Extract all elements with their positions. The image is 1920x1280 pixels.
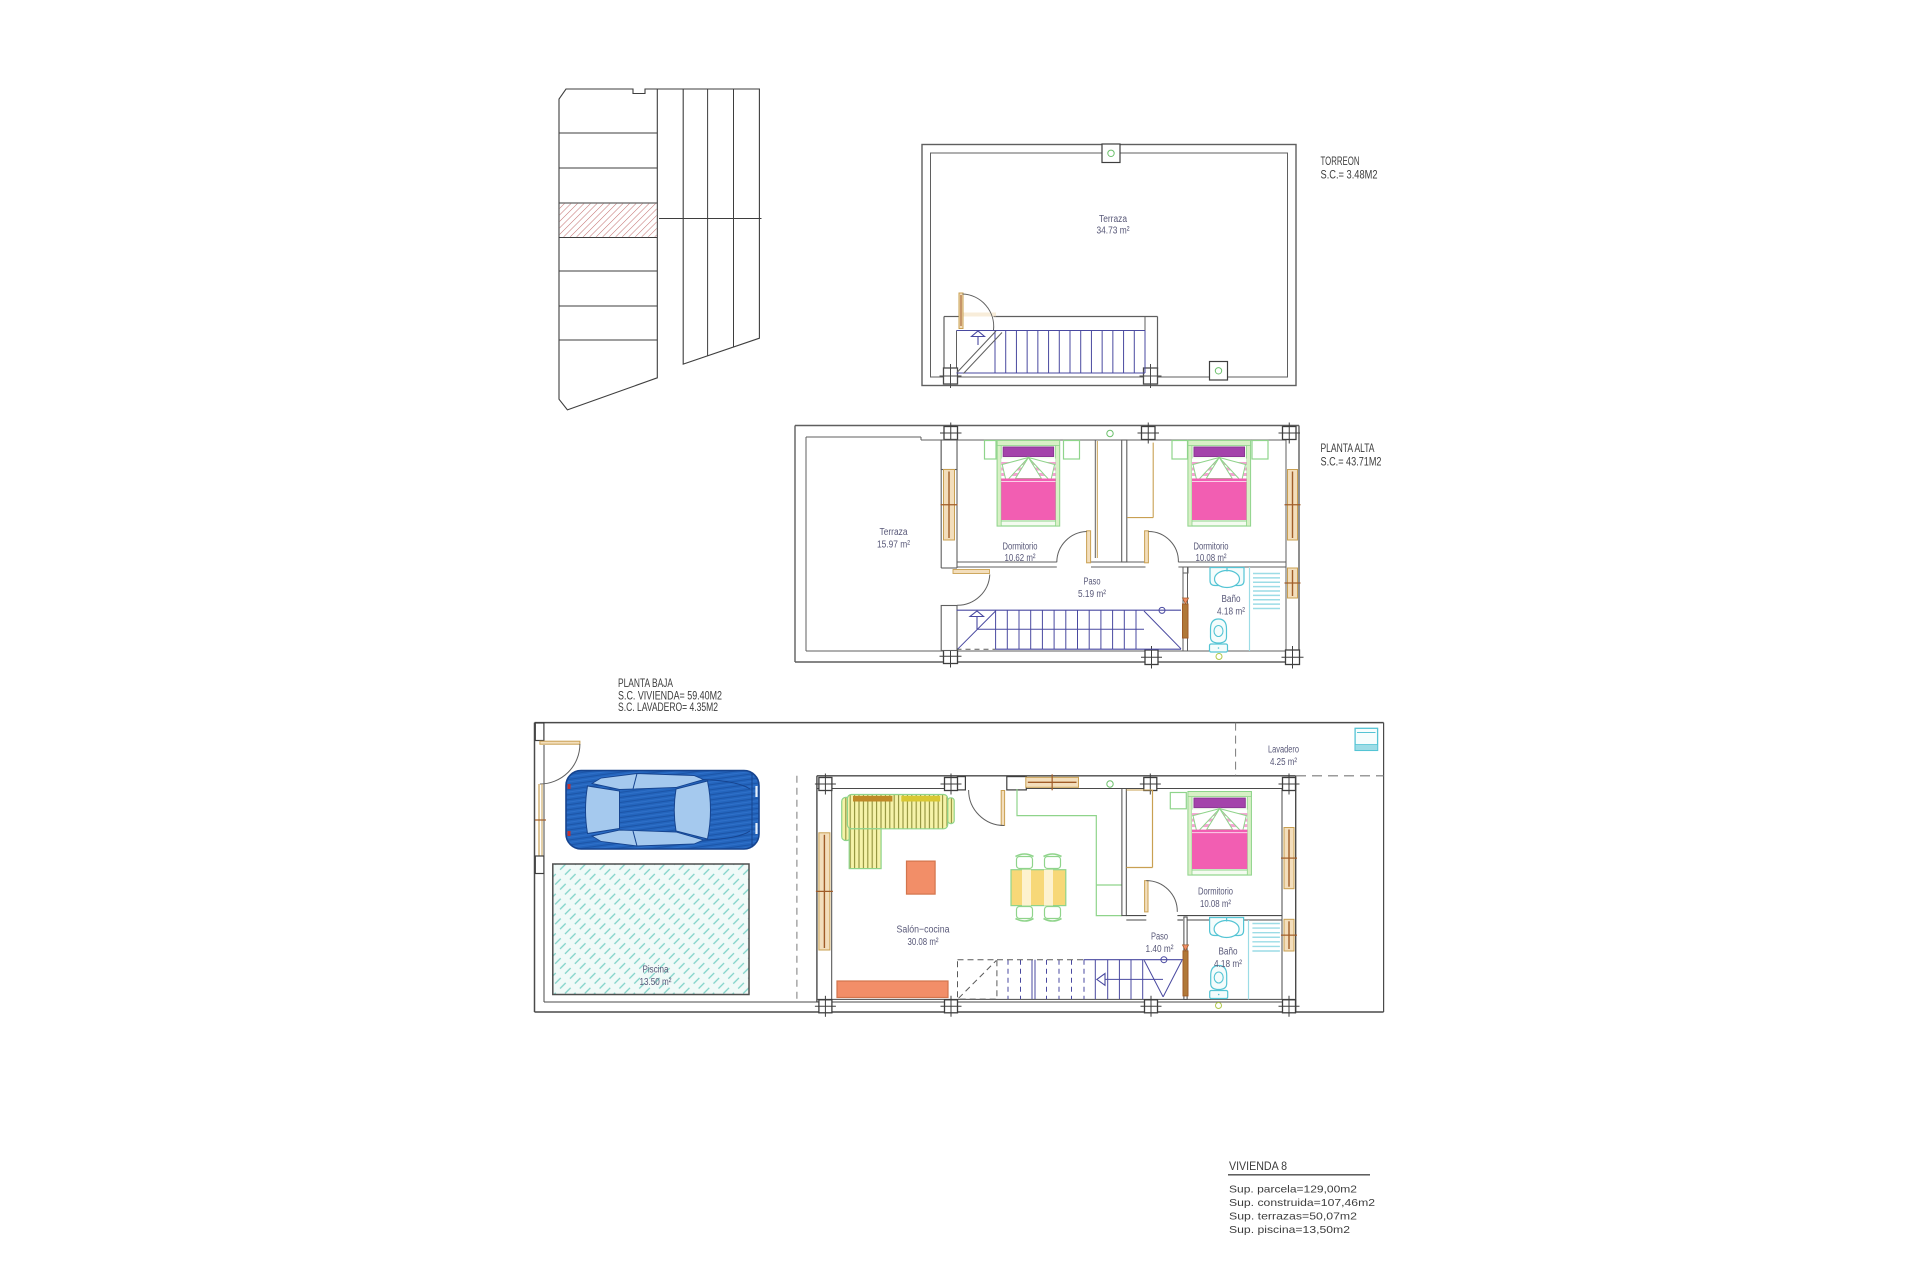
svg-text:Dormitorio: Dormitorio — [1198, 887, 1233, 898]
svg-text:10.08 m²: 10.08 m² — [1196, 553, 1228, 564]
svg-text:Sup. parcela=129,00m2: Sup. parcela=129,00m2 — [1229, 1184, 1357, 1196]
svg-text:VIVIENDA 8: VIVIENDA 8 — [1229, 1161, 1287, 1173]
svg-text:1.40 m²: 1.40 m² — [1146, 944, 1175, 955]
svg-text:4.18 m²: 4.18 m² — [1214, 959, 1243, 970]
svg-text:Paso: Paso — [1151, 932, 1168, 943]
svg-text:5.19 m²: 5.19 m² — [1078, 589, 1107, 600]
svg-text:4.25 m²: 4.25 m² — [1270, 757, 1298, 768]
svg-text:30.08 m²: 30.08 m² — [908, 937, 940, 948]
svg-text:S.C.= 3.48M2: S.C.= 3.48M2 — [1321, 170, 1378, 182]
svg-text:Salón−cocina: Salón−cocina — [897, 925, 950, 936]
svg-text:Piscina: Piscina — [643, 965, 669, 976]
svg-text:Lavadero: Lavadero — [1268, 745, 1299, 756]
svg-text:15.97 m²: 15.97 m² — [877, 540, 911, 551]
svg-text:Baño: Baño — [1219, 947, 1238, 958]
svg-text:Sup. construida=107,46m2: Sup. construida=107,46m2 — [1229, 1197, 1375, 1209]
svg-text:Terraza: Terraza — [880, 527, 908, 538]
svg-text:Sup. terrazas=50,07m2: Sup. terrazas=50,07m2 — [1229, 1211, 1357, 1223]
svg-text:10.62 m²: 10.62 m² — [1005, 553, 1037, 564]
svg-text:Dormitorio: Dormitorio — [1003, 542, 1038, 553]
svg-text:4.18 m²: 4.18 m² — [1217, 607, 1246, 618]
svg-text:Sup. piscina=13,50m2: Sup. piscina=13,50m2 — [1229, 1224, 1350, 1236]
svg-text:Terraza: Terraza — [1099, 214, 1127, 225]
svg-text:S.C.= 43.71M2: S.C.= 43.71M2 — [1321, 457, 1382, 469]
svg-text:10.08 m²: 10.08 m² — [1200, 899, 1232, 910]
svg-text:Baño: Baño — [1222, 594, 1241, 605]
svg-text:13.50 m²: 13.50 m² — [640, 977, 673, 988]
svg-text:PLANTA ALTA: PLANTA ALTA — [1321, 443, 1375, 455]
svg-text:PLANTA BAJA: PLANTA BAJA — [618, 678, 673, 690]
svg-text:S.C. LAVADERO= 4.35M2: S.C. LAVADERO= 4.35M2 — [618, 702, 718, 714]
svg-text:S.C. VIVIENDA= 59.40M2: S.C. VIVIENDA= 59.40M2 — [618, 691, 722, 703]
svg-text:TORREON: TORREON — [1321, 156, 1360, 168]
svg-text:Dormitorio: Dormitorio — [1194, 542, 1229, 553]
svg-text:Paso: Paso — [1084, 577, 1101, 588]
svg-text:34.73 m²: 34.73 m² — [1097, 226, 1131, 237]
